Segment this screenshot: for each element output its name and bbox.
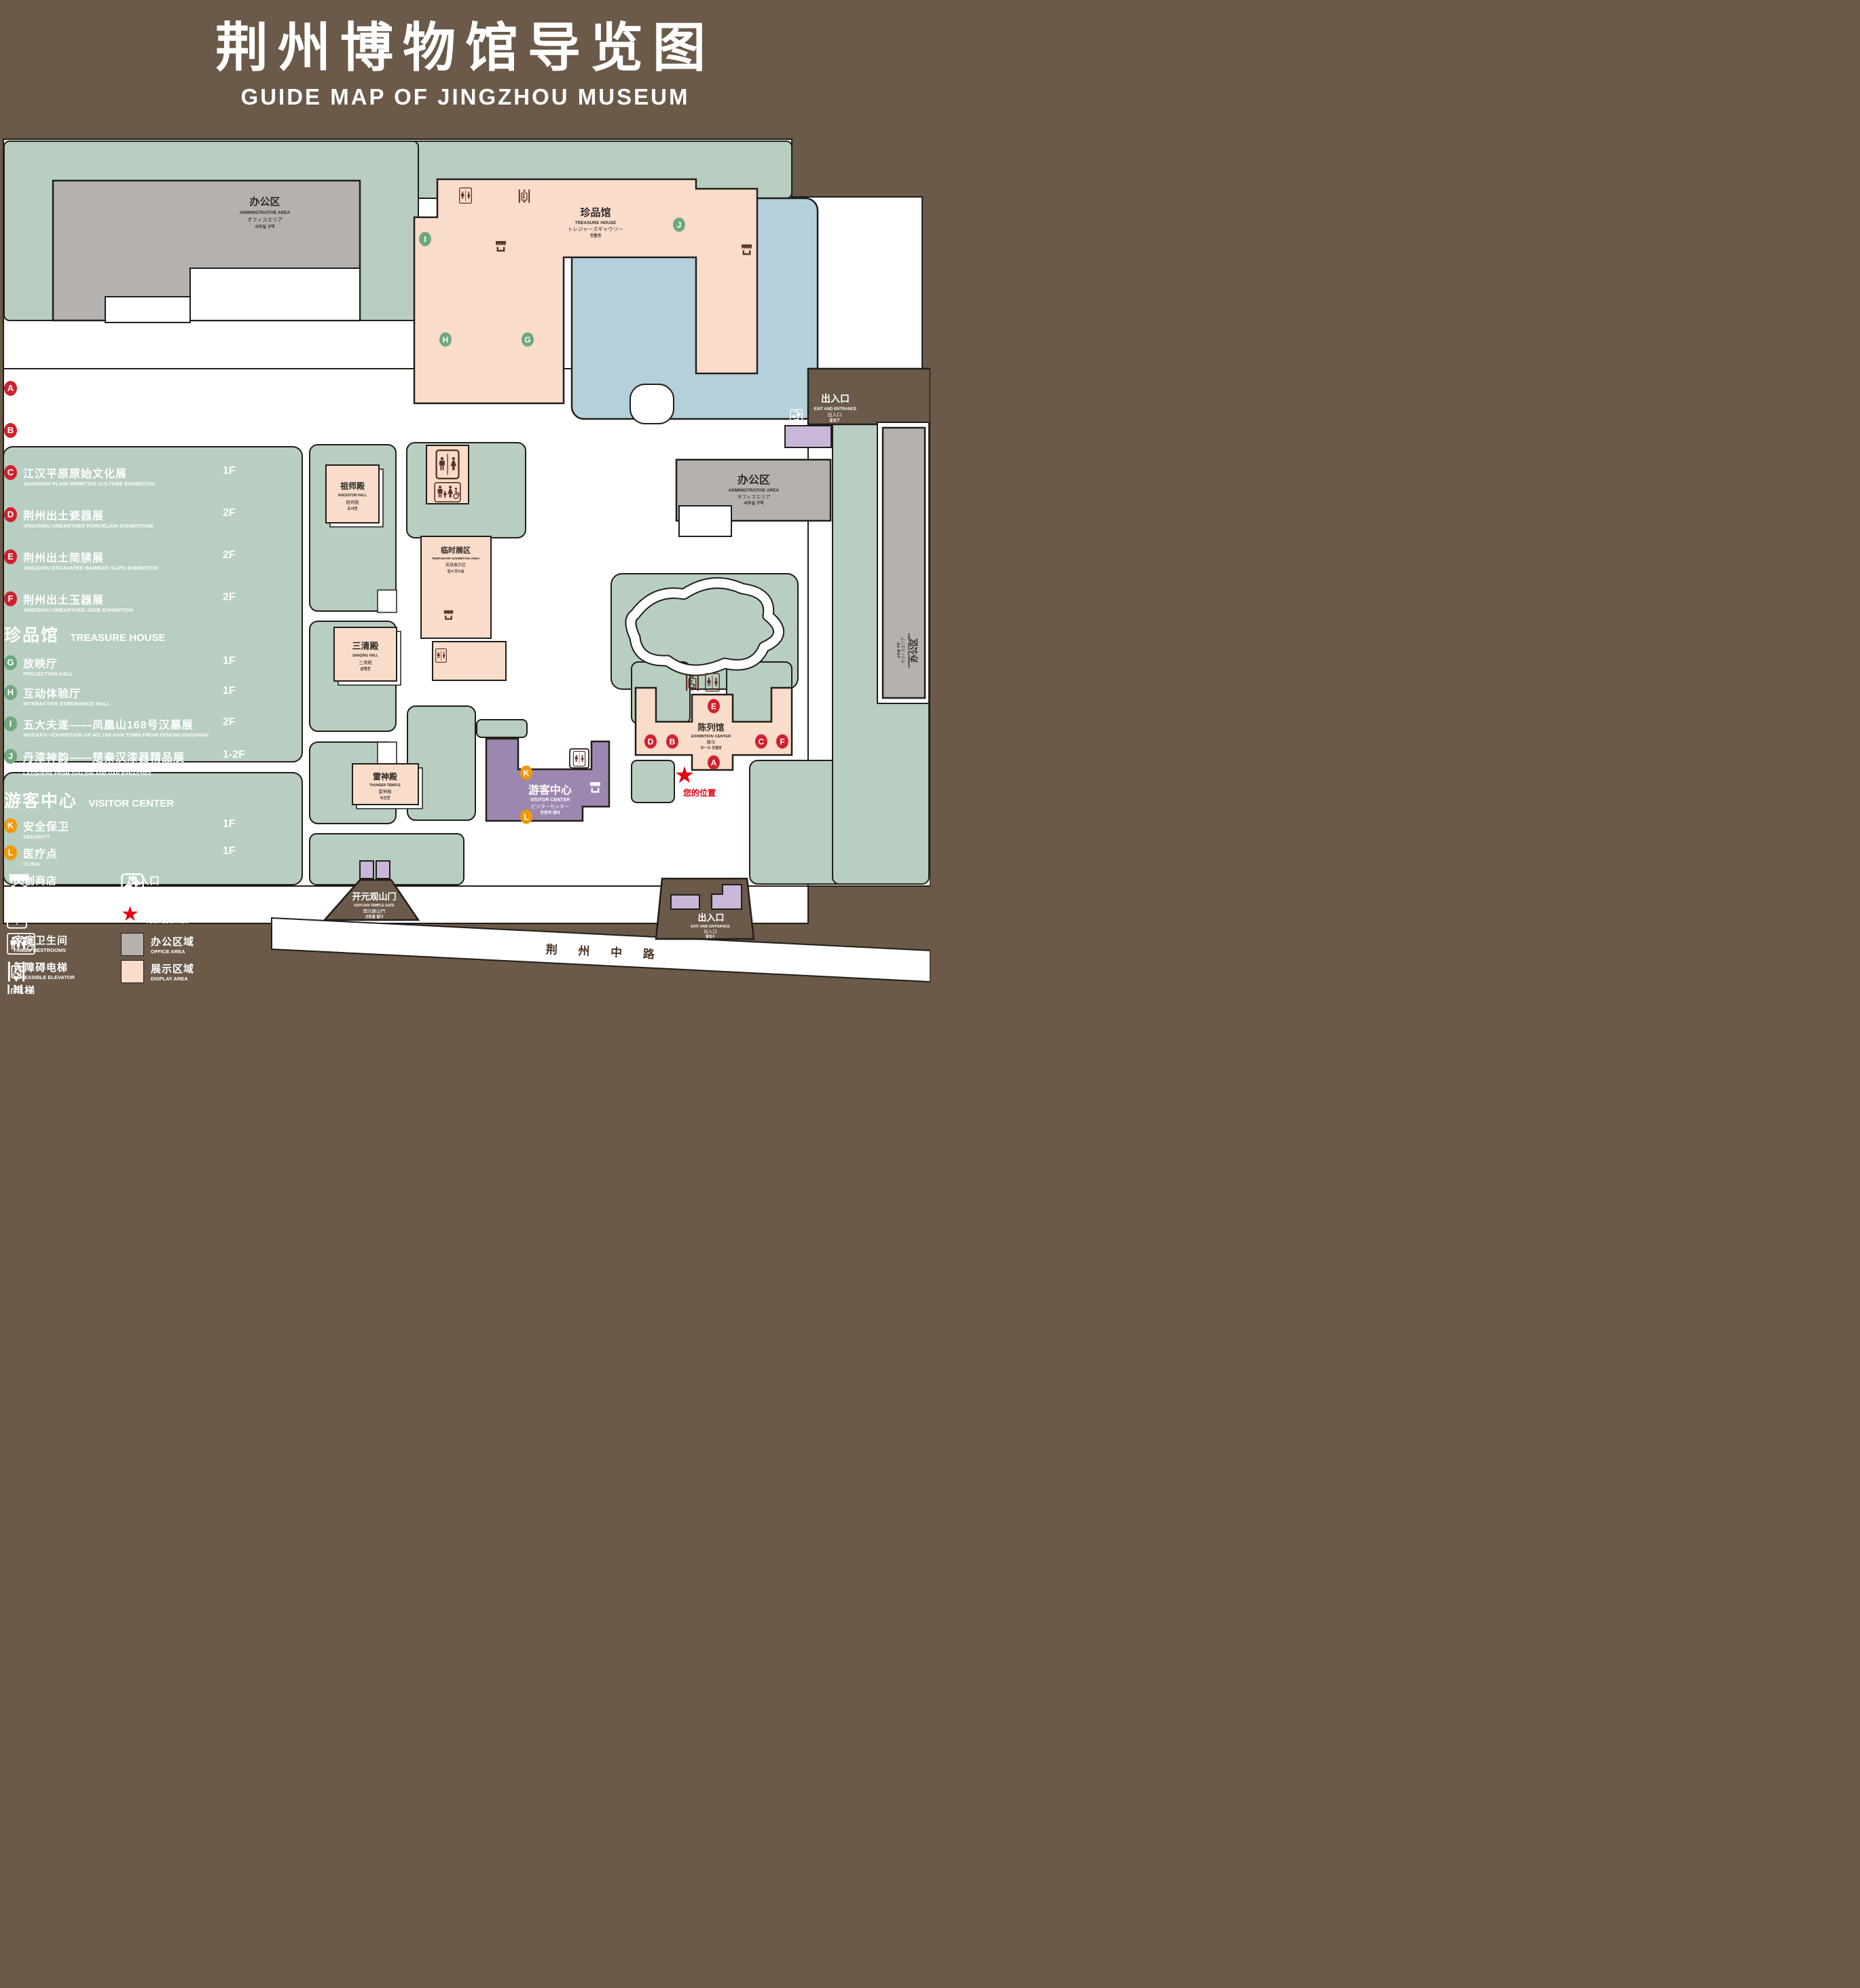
- legend-item-E: E 荆州出土简牍展 JINGZHOU EXCAVATED BAMBOO SLIP…: [4, 549, 255, 571]
- building-sanqing-hall: 三清殿 SANQING HALL 三清殿 삼청전: [334, 627, 401, 685]
- display-area-swatch: [121, 960, 144, 983]
- badge-H: H: [4, 685, 17, 700]
- section-title-cn: 珍品馆: [4, 626, 59, 645]
- section-title-en: EXHIBITION CENTER: [70, 353, 173, 365]
- legend-facility-family-restrooms: 家庭卫生间 FAMILY RESTROOMS: [7, 933, 68, 953]
- item-name: 互动体验厅: [23, 684, 224, 701]
- item-name: 荆州出土玉器展: [23, 591, 224, 607]
- item-desc: JIANGHAN PLAIN PRIMITIVE CULTURE EXHIBIT…: [23, 481, 224, 487]
- east-exit-label-kr: 출입구: [829, 418, 839, 423]
- exhibition-label-jp: 展示: [707, 739, 716, 745]
- svg-text:B: B: [670, 737, 676, 747]
- svg-text:C: C: [759, 737, 765, 747]
- svg-text:F: F: [780, 737, 784, 747]
- visitor-label-en: VISITOR CENTER: [530, 798, 570, 803]
- exhibition-label-kr: ホール 진열관: [700, 745, 722, 750]
- store-icon: [7, 873, 31, 896]
- facility-name: 展示区域: [151, 961, 194, 976]
- thunder-label-cn: 雷神殿: [373, 771, 398, 781]
- temp-shape-lower: [433, 642, 506, 680]
- gate-pillar: [376, 861, 390, 879]
- svg-text:L: L: [524, 813, 528, 822]
- treasure-label-kr: 진품관: [590, 233, 602, 238]
- family-restroom-icon: [7, 933, 35, 955]
- item-floor: 1F: [223, 423, 236, 435]
- facility-name: 办公区域: [151, 934, 194, 949]
- legend-item-G: G 放映厅 PROJECTION HALL 1F: [4, 655, 255, 677]
- badge-L: L: [4, 845, 17, 860]
- ancestor-label-cn: 祖师殿: [340, 481, 365, 491]
- legend-facility-accessible-elevator: 无障碍电梯 ACCESSIBLE ELEVATOR: [7, 960, 75, 980]
- badge-F: F: [4, 591, 17, 606]
- your-location-label: 您的位置: [683, 788, 716, 798]
- item-name: 安全保卫: [23, 817, 224, 834]
- restroom-icon: [7, 903, 27, 929]
- item-desc: THE PHOENIX IN FIRE "MURAL PAINTING: [23, 397, 224, 403]
- exhibition-label-en: EXHIBITION CENTER: [691, 735, 731, 739]
- admin-east-label-jp: オフィスエリア: [901, 637, 906, 663]
- item-name: 江汉平原原始文化展: [23, 464, 224, 481]
- section-title-en: VISITOR CENTER: [88, 798, 174, 809]
- legend-item-A: A 《火中的凤凰》壁画 THE PHOENIX IN FIRE "MURAL P…: [4, 380, 255, 403]
- item-floor: 1F: [223, 381, 236, 393]
- east-exit-label-jp: 出入口: [828, 411, 842, 418]
- temp-label-jp: 仮設展示区: [445, 562, 466, 568]
- item-name: 医疗点: [23, 845, 224, 861]
- legend-item-B: B 荆州出土铜器展 JINGZHOU UNEARTHED BRONZE WARE…: [4, 422, 255, 445]
- item-desc: JINGZHOU UNEARTHED PORCELAIN EXHIBITIONE: [23, 523, 224, 529]
- map-badge-F: F: [776, 735, 788, 749]
- admin-east-label-kr: 사무실 구역: [896, 642, 901, 658]
- item-name: 荆州出土简牍展: [23, 549, 224, 565]
- admin-central-label-cn: 办公区: [737, 473, 770, 486]
- lawn: [632, 760, 674, 803]
- temp-label-cn: 临时展区: [441, 545, 471, 555]
- admin-central-label-en: ADMINISTRATIVE AREA: [729, 488, 780, 493]
- thunder-path: [378, 742, 397, 765]
- service-building: [671, 895, 699, 909]
- badge-B: B: [4, 423, 17, 438]
- admin-central-label-kr: 사무실 구역: [744, 500, 763, 506]
- legend-item-H: H 互动体验厅 INTERACTIVE EXPERIENCE HALL 1F: [4, 684, 255, 707]
- item-name: 荆州出土铜器展: [23, 422, 224, 439]
- east-exit-label-cn: 出入口: [821, 393, 850, 404]
- item-floor: 2F: [223, 591, 236, 604]
- item-floor: 1F: [223, 655, 236, 667]
- admin-east-label-en: ADMINISTRATIVE AREA: [907, 632, 911, 668]
- legend-facility-office-area: 办公区域 OFFICE AREA: [121, 933, 194, 956]
- exit-icon: [121, 873, 144, 896]
- badge-A: A: [4, 381, 17, 396]
- item-floor: 2F: [223, 549, 236, 562]
- treasure-label-cn: 珍品馆: [580, 206, 610, 219]
- admin-central-courtyard: [679, 506, 731, 536]
- lawn: [477, 720, 527, 737]
- map-badge-J: J: [673, 218, 685, 232]
- location-star-icon: ★: [674, 762, 695, 788]
- item-floor: 1F: [223, 818, 236, 830]
- item-desc: JINGZHOU UNEARTHED JADE EXHIBITION: [23, 607, 224, 613]
- item-desc: PROJECTION HALL: [23, 671, 224, 677]
- badge-K: K: [4, 818, 17, 833]
- svg-text:D: D: [648, 737, 654, 747]
- badge-J: J: [4, 749, 17, 764]
- section-title-en: TREASURE HOUSE: [70, 632, 165, 644]
- south-exit-label-jp: 出入口: [704, 928, 717, 934]
- office-area-swatch: [121, 933, 144, 956]
- sanqing-label-en: SANQING HALL: [352, 654, 378, 658]
- section-title-cn: 游客中心: [4, 792, 77, 811]
- legend-facility-store: 文创商店 STORE: [7, 873, 57, 894]
- svg-text:G: G: [524, 335, 530, 345]
- exhibition-label-cn: 陈列馆: [697, 722, 724, 733]
- south-exit-label-cn: 出入口: [697, 913, 724, 923]
- map-badge-B: B: [666, 735, 678, 749]
- facility-desc: DISPLAY AREA: [151, 976, 194, 982]
- legend-panel: 陈列馆 EXHIBITION CENTER A 《火中的凤凰》壁画 THE PH…: [0, 0, 272, 994]
- legend-facility-elevator: 电梯 Elevator: [7, 983, 35, 994]
- facility-desc: YOUR LOCATION: [146, 919, 189, 925]
- badge-C: C: [4, 465, 17, 480]
- visitor-label-cn: 游客中心: [528, 784, 572, 796]
- gate-label-kr: 산문을 열다: [365, 914, 384, 919]
- legend-item-F: F 荆州出土玉器展 JINGZHOU UNEARTHED JADE EXHIBI…: [4, 591, 255, 613]
- admin-central-label-jp: オフィスエリア: [737, 494, 771, 500]
- thunder-label-kr: 뇌신전: [380, 795, 390, 800]
- svg-text:K: K: [524, 769, 530, 778]
- item-floor: 1F: [223, 465, 236, 477]
- legend-item-C: C 江汉平原原始文化展 JIANGHAN PLAIN PRIMITIVE CUL…: [4, 464, 255, 487]
- map-badge-G: G: [522, 333, 534, 347]
- legend-item-K: K 安全保卫 SECURITY 1F: [4, 817, 255, 840]
- legend-item-I: I 五大夫遂——凤凰山168号汉墓展 WUDAFU—EXHIBITION OF …: [4, 716, 255, 738]
- treasure-label-en: TREASURE HOUSE: [575, 221, 617, 225]
- legend-item-L: L 医疗点 CLINIC 1F: [4, 845, 255, 867]
- building-admin-east: 办公区 ADMINISTRATIVE AREA オフィスエリア 사무실 구역: [877, 422, 929, 703]
- item-floor: 1F: [223, 685, 236, 697]
- sanqing-label-kr: 삼청전: [360, 666, 370, 671]
- svg-text:J: J: [677, 221, 682, 230]
- item-desc: INTERACTIVE EXPERIENCE HALL: [23, 701, 224, 707]
- svg-text:A: A: [711, 758, 717, 768]
- map-badge-K: K: [520, 766, 532, 780]
- legend-item-D: D 荆州出土瓷器展 JINGZHOU UNEARTHED PORCELAIN E…: [4, 507, 255, 529]
- east-exit-label-en: EXIT AND ENTRANCE: [814, 407, 857, 411]
- svg-text:E: E: [711, 702, 716, 712]
- item-name: 放映厅: [23, 655, 224, 671]
- item-floor: 2F: [223, 507, 236, 519]
- legend-section-exhibition: 陈列馆 EXHIBITION CENTER: [4, 343, 173, 367]
- treasure-label-jp: トレジャーズギャウリー: [568, 225, 623, 232]
- gate-pillar: [360, 861, 373, 879]
- elevator-icon: [7, 983, 23, 994]
- badge-D: D: [4, 507, 17, 522]
- sanqing-label-cn: 三清殿: [352, 641, 379, 651]
- svg-text:I: I: [424, 235, 426, 244]
- item-desc: ROMANTIC CHARM OF THE CRIMSON LACQUERS—E…: [23, 765, 224, 777]
- legend-facility-exit: 出入口 EXIT AND ENTRANCE: [121, 873, 181, 894]
- badge-I: I: [4, 716, 17, 731]
- legend-section-visitor: 游客中心 VISITOR CENTER: [4, 788, 174, 812]
- ancestor-label-jp: 祖师殿: [346, 499, 359, 505]
- ancestor-path: [378, 590, 397, 612]
- pond-inlet: [630, 384, 674, 424]
- south-exit-label-en: EXIT AND ENTRANCE: [691, 925, 730, 929]
- item-desc: JINGZHOU UNEARTHED BRONZE WARE EXHIBITIO…: [23, 439, 224, 445]
- item-desc: JINGZHOU EXCAVATED BAMBOO SLIPS EXHIBITI…: [23, 565, 224, 571]
- map-badge-L: L: [520, 810, 532, 824]
- item-floor: 2F: [223, 716, 236, 729]
- item-name: 丹漆神韵——楚秦汉漆器精品展: [23, 748, 224, 765]
- svg-text:H: H: [443, 335, 449, 345]
- badge-E: E: [4, 549, 17, 564]
- legend-facility-display-area: 展示区域 DISPLAY AREA: [121, 960, 194, 983]
- legend-facility-restrooms: 卫生间 RESTROOMS: [7, 903, 46, 923]
- legend-section-treasure: 珍品馆 TREASURE HOUSE: [4, 622, 166, 646]
- accessible-elevator-icon: [7, 960, 26, 983]
- legend-item-J: J 丹漆神韵——楚秦汉漆器精品展 ROMANTIC CHARM OF THE C…: [4, 748, 255, 777]
- item-floor: 1-2F: [223, 749, 245, 761]
- map-badge-A: A: [708, 756, 720, 770]
- map-badge-H: H: [439, 333, 452, 347]
- gate-label-en: KAIYUAN TEMPLE GATE: [354, 904, 395, 908]
- item-desc: WUDAFU—EXHIBITION OF NO.168 HAN TOMB FRO…: [23, 732, 224, 738]
- ancestor-label-kr: 조사전: [347, 506, 357, 511]
- visitor-label-kr: 관광객 센터: [540, 810, 560, 815]
- section-title-cn: 陈列馆: [4, 347, 59, 366]
- map-badge-D: D: [644, 735, 657, 749]
- thunder-label-jp: 雷神殿: [378, 788, 392, 794]
- temp-label-en: TEMPORARY EXHIBITION AREA: [432, 557, 480, 560]
- guide-map-page: 荆州博物馆导览图 GUIDE MAP OF JINGZHOU MUSEUM: [0, 0, 930, 994]
- item-name: 《火中的凤凰》壁画: [23, 380, 224, 397]
- ancestor-label-en: ANCESTOR HALL: [338, 494, 367, 498]
- gate-label-jp: 開元観山門: [363, 908, 386, 914]
- legend-facility-location: ★ 您的位置 YOUR LOCATION: [121, 903, 189, 926]
- badge-G: G: [4, 655, 17, 670]
- thunder-label-en: THUNDER TEMPLE: [369, 784, 401, 788]
- visitor-label-jp: ビジターセンター: [531, 803, 569, 809]
- location-star-icon: ★: [121, 903, 139, 926]
- south-exit-label-kr: 출입구: [706, 934, 715, 939]
- map-badge-E: E: [708, 699, 720, 714]
- item-floor: 1F: [223, 845, 236, 858]
- restroom-block: [426, 445, 469, 504]
- facility-name: 您的位置: [146, 904, 189, 919]
- sanqing-label-jp: 三清殿: [359, 659, 372, 665]
- item-desc: SECURITY: [23, 834, 224, 840]
- map-badge-C: C: [755, 735, 767, 749]
- item-desc: CLINIC: [23, 861, 224, 867]
- service-building: [785, 426, 831, 447]
- temp-label-kr: 임시 전시실: [448, 569, 464, 574]
- map-badge-I: I: [419, 232, 431, 246]
- facility-desc: OFFICE AREA: [151, 949, 194, 955]
- item-name: 五大夫遂——凤凰山168号汉墓展: [23, 716, 224, 732]
- gate-label-cn: 开元观山门: [352, 891, 396, 902]
- item-name: 荆州出土瓷器展: [23, 507, 224, 523]
